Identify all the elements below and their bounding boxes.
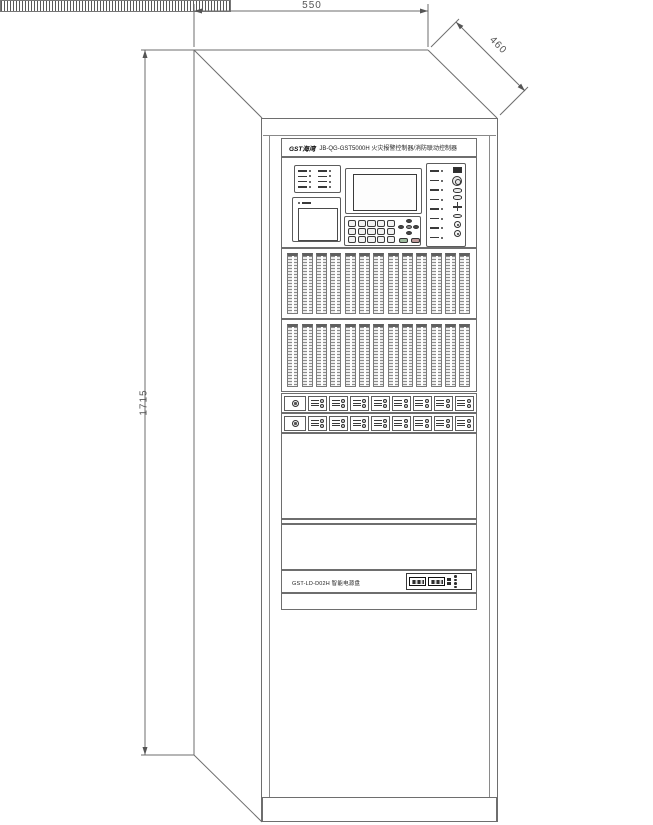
function-button (453, 188, 462, 193)
loop-card (359, 253, 370, 314)
control-module-row (281, 413, 477, 433)
numeric-keypad (348, 220, 395, 243)
control-module (329, 396, 348, 411)
keypad-key (358, 236, 366, 243)
power-panel-label: GST-LD-D02H 智能电源盘 (292, 579, 360, 587)
control-module (308, 396, 327, 411)
loop-card (330, 324, 341, 387)
navigation-keys (398, 219, 420, 236)
keypad-key (377, 220, 385, 227)
control-module (455, 416, 474, 431)
lcd-screen (353, 174, 417, 211)
power-display-module (406, 573, 472, 590)
voltage-display (409, 577, 426, 586)
label-line (298, 186, 307, 188)
loop-card (388, 324, 399, 387)
module-label-lines (353, 400, 361, 406)
model-title: JB-QG-GST5000H 火灾报警控制器/消防联动控制器 (319, 143, 457, 152)
loop-card (287, 253, 298, 314)
face-top-trim-line (263, 135, 496, 136)
lcd-display-bezel (345, 168, 422, 214)
module-leds (383, 399, 387, 408)
loop-card (330, 253, 341, 314)
current-display (428, 577, 445, 586)
label-line (302, 202, 311, 204)
led-indicator (318, 169, 338, 173)
led-dot (309, 175, 311, 177)
module-label-lines (457, 420, 465, 426)
label-line (430, 199, 439, 201)
function-button (453, 195, 462, 200)
led-indicator (298, 174, 318, 178)
led-indicator (298, 180, 318, 184)
module-label-lines (436, 400, 444, 406)
label-line (318, 170, 327, 172)
control-module (350, 396, 369, 411)
keypad-key (348, 220, 356, 227)
label-line (298, 181, 307, 183)
function-button (453, 214, 462, 219)
arrow-left-key (398, 225, 404, 229)
label-line (430, 227, 439, 229)
usb-port (453, 167, 462, 173)
led-dot (441, 227, 443, 229)
loop-card (373, 253, 384, 314)
led-dot (441, 189, 443, 191)
height-dimension-label: 1715 (139, 383, 150, 423)
label-line (318, 181, 327, 183)
led-indicator (430, 217, 443, 221)
speaker-knob (292, 400, 299, 407)
led-dot (329, 186, 331, 188)
label-line (318, 176, 327, 178)
control-module (413, 416, 432, 431)
printer-window (298, 208, 338, 241)
module-label-lines (374, 400, 382, 406)
led-indicator (318, 180, 338, 184)
bottom-left-diagonal (194, 755, 262, 822)
module-label-lines (332, 400, 340, 406)
brand-logo: GST海湾 (289, 143, 315, 153)
plus-marker (453, 202, 462, 211)
loop-card (302, 324, 313, 387)
loop-card (416, 324, 427, 387)
keypad-key (367, 220, 375, 227)
module-label-lines (311, 420, 319, 426)
control-module (434, 416, 453, 431)
right-control-stack (450, 167, 464, 237)
loop-card (402, 253, 413, 314)
module-label-lines (415, 420, 423, 426)
module-leds (425, 399, 429, 408)
control-module (434, 396, 453, 411)
label-line (430, 237, 439, 239)
module-label-lines (332, 420, 340, 426)
loop-card (345, 324, 356, 387)
module-label-lines (415, 400, 423, 406)
loop-card (402, 324, 413, 387)
loop-card (316, 324, 327, 387)
loop-card (459, 324, 470, 387)
module-leds (467, 399, 471, 408)
control-module (350, 416, 369, 431)
module-leds (467, 419, 471, 428)
led-dot (441, 180, 443, 182)
led-dot (329, 181, 331, 183)
loop-card (459, 253, 470, 314)
module-leds (320, 399, 324, 408)
top-left-diagonal (194, 50, 262, 118)
blank-panel (281, 433, 477, 519)
ext-line-460-back (431, 19, 459, 47)
led-dot (309, 186, 311, 188)
loop-card-row (281, 248, 477, 319)
control-module (308, 416, 327, 431)
left-mounting-rail (269, 135, 270, 797)
ext-line-460-front (500, 87, 528, 115)
led-indicator (318, 174, 338, 178)
module-leds (446, 399, 450, 408)
loop-card (345, 253, 356, 314)
loop-card (373, 324, 384, 387)
module-leds (320, 419, 324, 428)
right-indicator-column (426, 163, 466, 247)
loop-card (431, 324, 442, 387)
control-module (392, 396, 411, 411)
keypad-key (348, 228, 356, 235)
module-leds (341, 399, 345, 408)
module-leds (404, 399, 408, 408)
label-line (298, 170, 307, 172)
right-mounting-rail (489, 135, 490, 797)
control-module (329, 416, 348, 431)
loop-card-row (281, 319, 477, 392)
module-label-lines (457, 400, 465, 406)
module-leds (362, 399, 366, 408)
keypad-key (387, 228, 395, 235)
module-label-lines (394, 400, 402, 406)
label-line (430, 180, 439, 182)
led-dot (309, 181, 311, 183)
module-label-lines (374, 420, 382, 426)
keypad-key (377, 228, 385, 235)
module-leds (383, 419, 387, 428)
label-line (430, 218, 439, 220)
speaker-knob (292, 420, 299, 427)
led-dot (441, 208, 443, 210)
module-label-lines (436, 420, 444, 426)
control-module (392, 416, 411, 431)
width-dimension-label: 550 (296, 0, 328, 11)
power-supply-panel: GST-LD-D02H 智能电源盘 (281, 570, 477, 593)
loop-card (445, 253, 456, 314)
module-leds (446, 419, 450, 428)
module-label-lines (311, 400, 319, 406)
ok-key (406, 225, 412, 229)
led-dot (329, 175, 331, 177)
control-module (413, 396, 432, 411)
loop-card (302, 253, 313, 314)
module-leds (404, 419, 408, 428)
buzzer-silence-button (454, 221, 461, 228)
arrow-right-key (413, 225, 419, 229)
loop-card (316, 253, 327, 314)
led-indicator (318, 185, 338, 189)
status-indicator-box (294, 165, 341, 193)
loop-card (445, 324, 456, 387)
arrow-down-key (406, 231, 412, 235)
label-line (430, 170, 439, 172)
printer-indicator (298, 201, 311, 205)
key-switch (452, 176, 462, 186)
label-line (430, 189, 439, 191)
keypad-key (358, 228, 366, 235)
module-label-lines (394, 420, 402, 426)
power-switch (447, 578, 451, 585)
control-module (371, 396, 390, 411)
keypad-key (387, 236, 395, 243)
led-indicator (430, 207, 443, 211)
led-dot (329, 170, 331, 172)
loop-card (431, 253, 442, 314)
control-module (455, 396, 474, 411)
label-line (430, 208, 439, 210)
cancel-key (411, 238, 420, 243)
right-indicator-list (430, 169, 443, 240)
led-dot (441, 237, 443, 239)
loop-card (388, 253, 399, 314)
arrow-up-key (406, 219, 412, 223)
led-indicator (430, 236, 443, 240)
label-line (298, 176, 307, 178)
led-indicator (430, 226, 443, 230)
cabinet-base (262, 797, 497, 822)
engineering-drawing: 550 1715 460 GST海湾 JB-QG-GST5000H 火灾报警控制… (0, 0, 653, 825)
confirm-key (399, 238, 408, 243)
keypad-key (367, 228, 375, 235)
module-label-lines (353, 420, 361, 426)
sounder-module (284, 396, 306, 411)
led-dot (298, 202, 300, 204)
top-right-diagonal (428, 50, 497, 118)
loop-card (287, 324, 298, 387)
led-dot (309, 170, 311, 172)
led-indicator (298, 185, 318, 189)
blank-strip (281, 593, 477, 610)
led-dot (441, 199, 443, 201)
sounder-module (284, 416, 306, 431)
blank-panel (281, 524, 477, 570)
loop-card (359, 324, 370, 387)
module-leds (425, 419, 429, 428)
keypad-key (387, 220, 395, 227)
main-controller-panel (281, 157, 477, 248)
led-indicator (430, 169, 443, 173)
reset-button (454, 230, 461, 237)
header-strip: GST海湾 JB-QG-GST5000H 火灾报警控制器/消防联动控制器 (281, 138, 477, 157)
keypad-key (358, 220, 366, 227)
keypad-key (377, 236, 385, 243)
label-line (318, 186, 327, 188)
control-module-row (281, 393, 477, 413)
power-led-column (454, 575, 457, 588)
led-indicator (298, 169, 318, 173)
keypad-area (344, 216, 421, 246)
printer-box (292, 197, 341, 242)
led-dot (441, 170, 443, 172)
led-indicator (430, 188, 443, 192)
keypad-key (348, 236, 356, 243)
led-indicator (430, 198, 443, 202)
keypad-key (367, 236, 375, 243)
loop-card (416, 253, 427, 314)
led-indicator (430, 179, 443, 183)
module-leds (362, 419, 366, 428)
module-leds (341, 419, 345, 428)
led-dot (441, 218, 443, 220)
control-module (371, 416, 390, 431)
